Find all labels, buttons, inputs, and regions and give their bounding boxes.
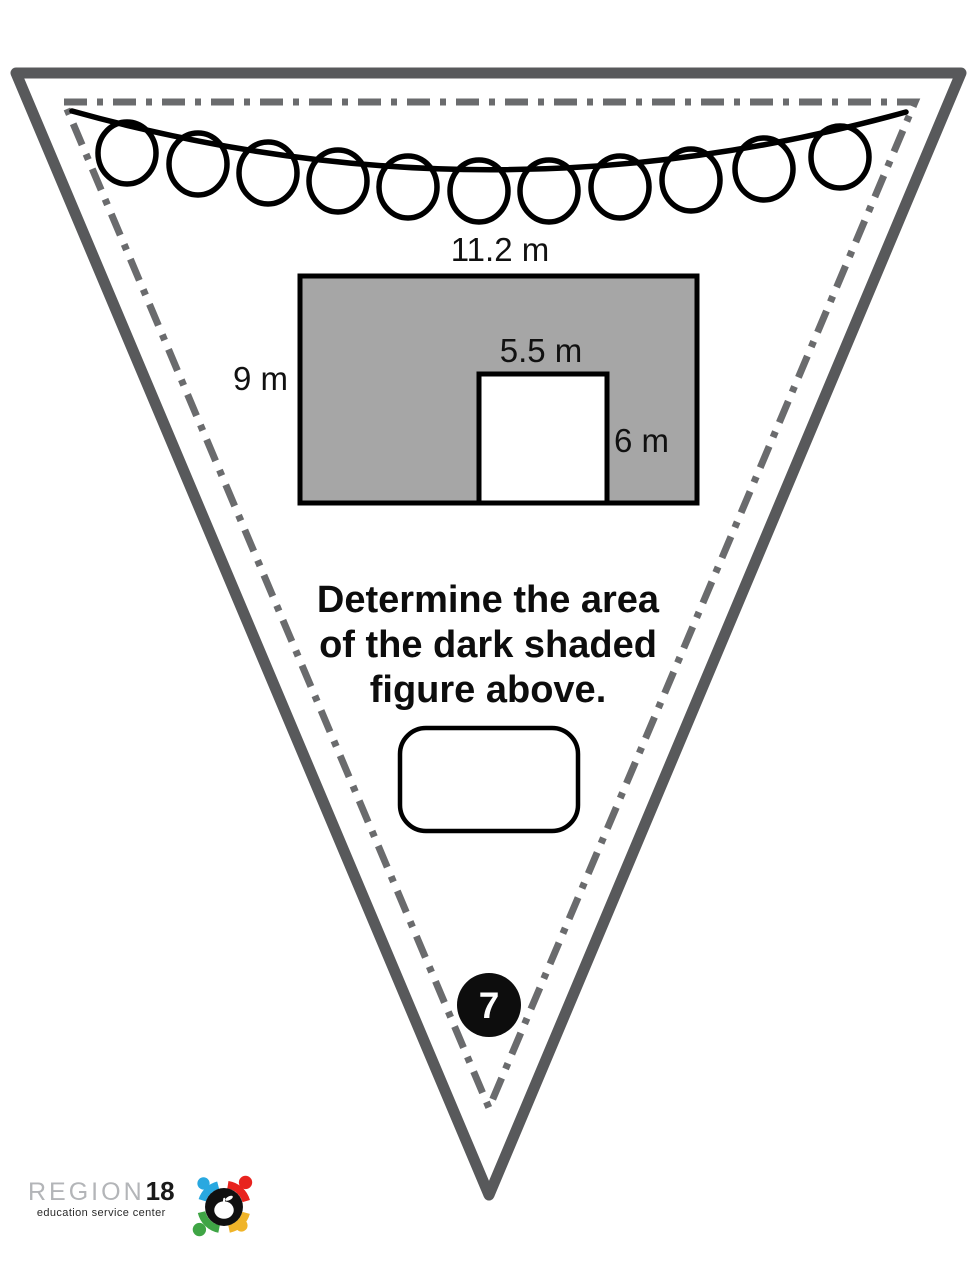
blue-dot — [197, 1177, 209, 1189]
red-dot — [238, 1176, 251, 1189]
yellow-dot — [235, 1219, 247, 1231]
label-cutout-height: 6 m — [614, 422, 669, 459]
green-dot — [192, 1223, 205, 1236]
logo-text-column: REGION18 education service center — [28, 1166, 175, 1219]
logo-wordmark: REGION18 — [28, 1178, 175, 1205]
garland — [72, 111, 906, 222]
question-line-1: Determine the area — [317, 579, 660, 621]
question-text: Determine the area of the dark shaded fi… — [317, 579, 660, 711]
cutout-rectangle — [479, 374, 607, 503]
worksheet-page: 11.2 m 9 m 5.5 m 6 m Determine the area … — [0, 0, 979, 1266]
question-line-2: of the dark shaded — [319, 624, 657, 666]
pennant-graphic: 11.2 m 9 m 5.5 m 6 m Determine the area … — [0, 0, 979, 1266]
badge-number: 7 — [479, 985, 500, 1026]
label-outer-height: 9 m — [233, 360, 288, 397]
question-number-badge: 7 — [457, 973, 521, 1037]
region18-emblem-icon — [185, 1166, 263, 1248]
region18-logo: REGION18 education service center — [28, 1166, 263, 1248]
label-outer-width: 11.2 m — [451, 231, 549, 268]
logo-tagline: education service center — [37, 1207, 166, 1219]
logo-number-text: 18 — [146, 1178, 175, 1204]
logo-region-text: REGION — [28, 1180, 145, 1205]
answer-box[interactable] — [400, 728, 578, 831]
question-line-3: figure above. — [370, 669, 607, 711]
area-figure: 11.2 m 9 m 5.5 m 6 m — [233, 231, 697, 503]
label-cutout-width: 5.5 m — [500, 332, 583, 369]
